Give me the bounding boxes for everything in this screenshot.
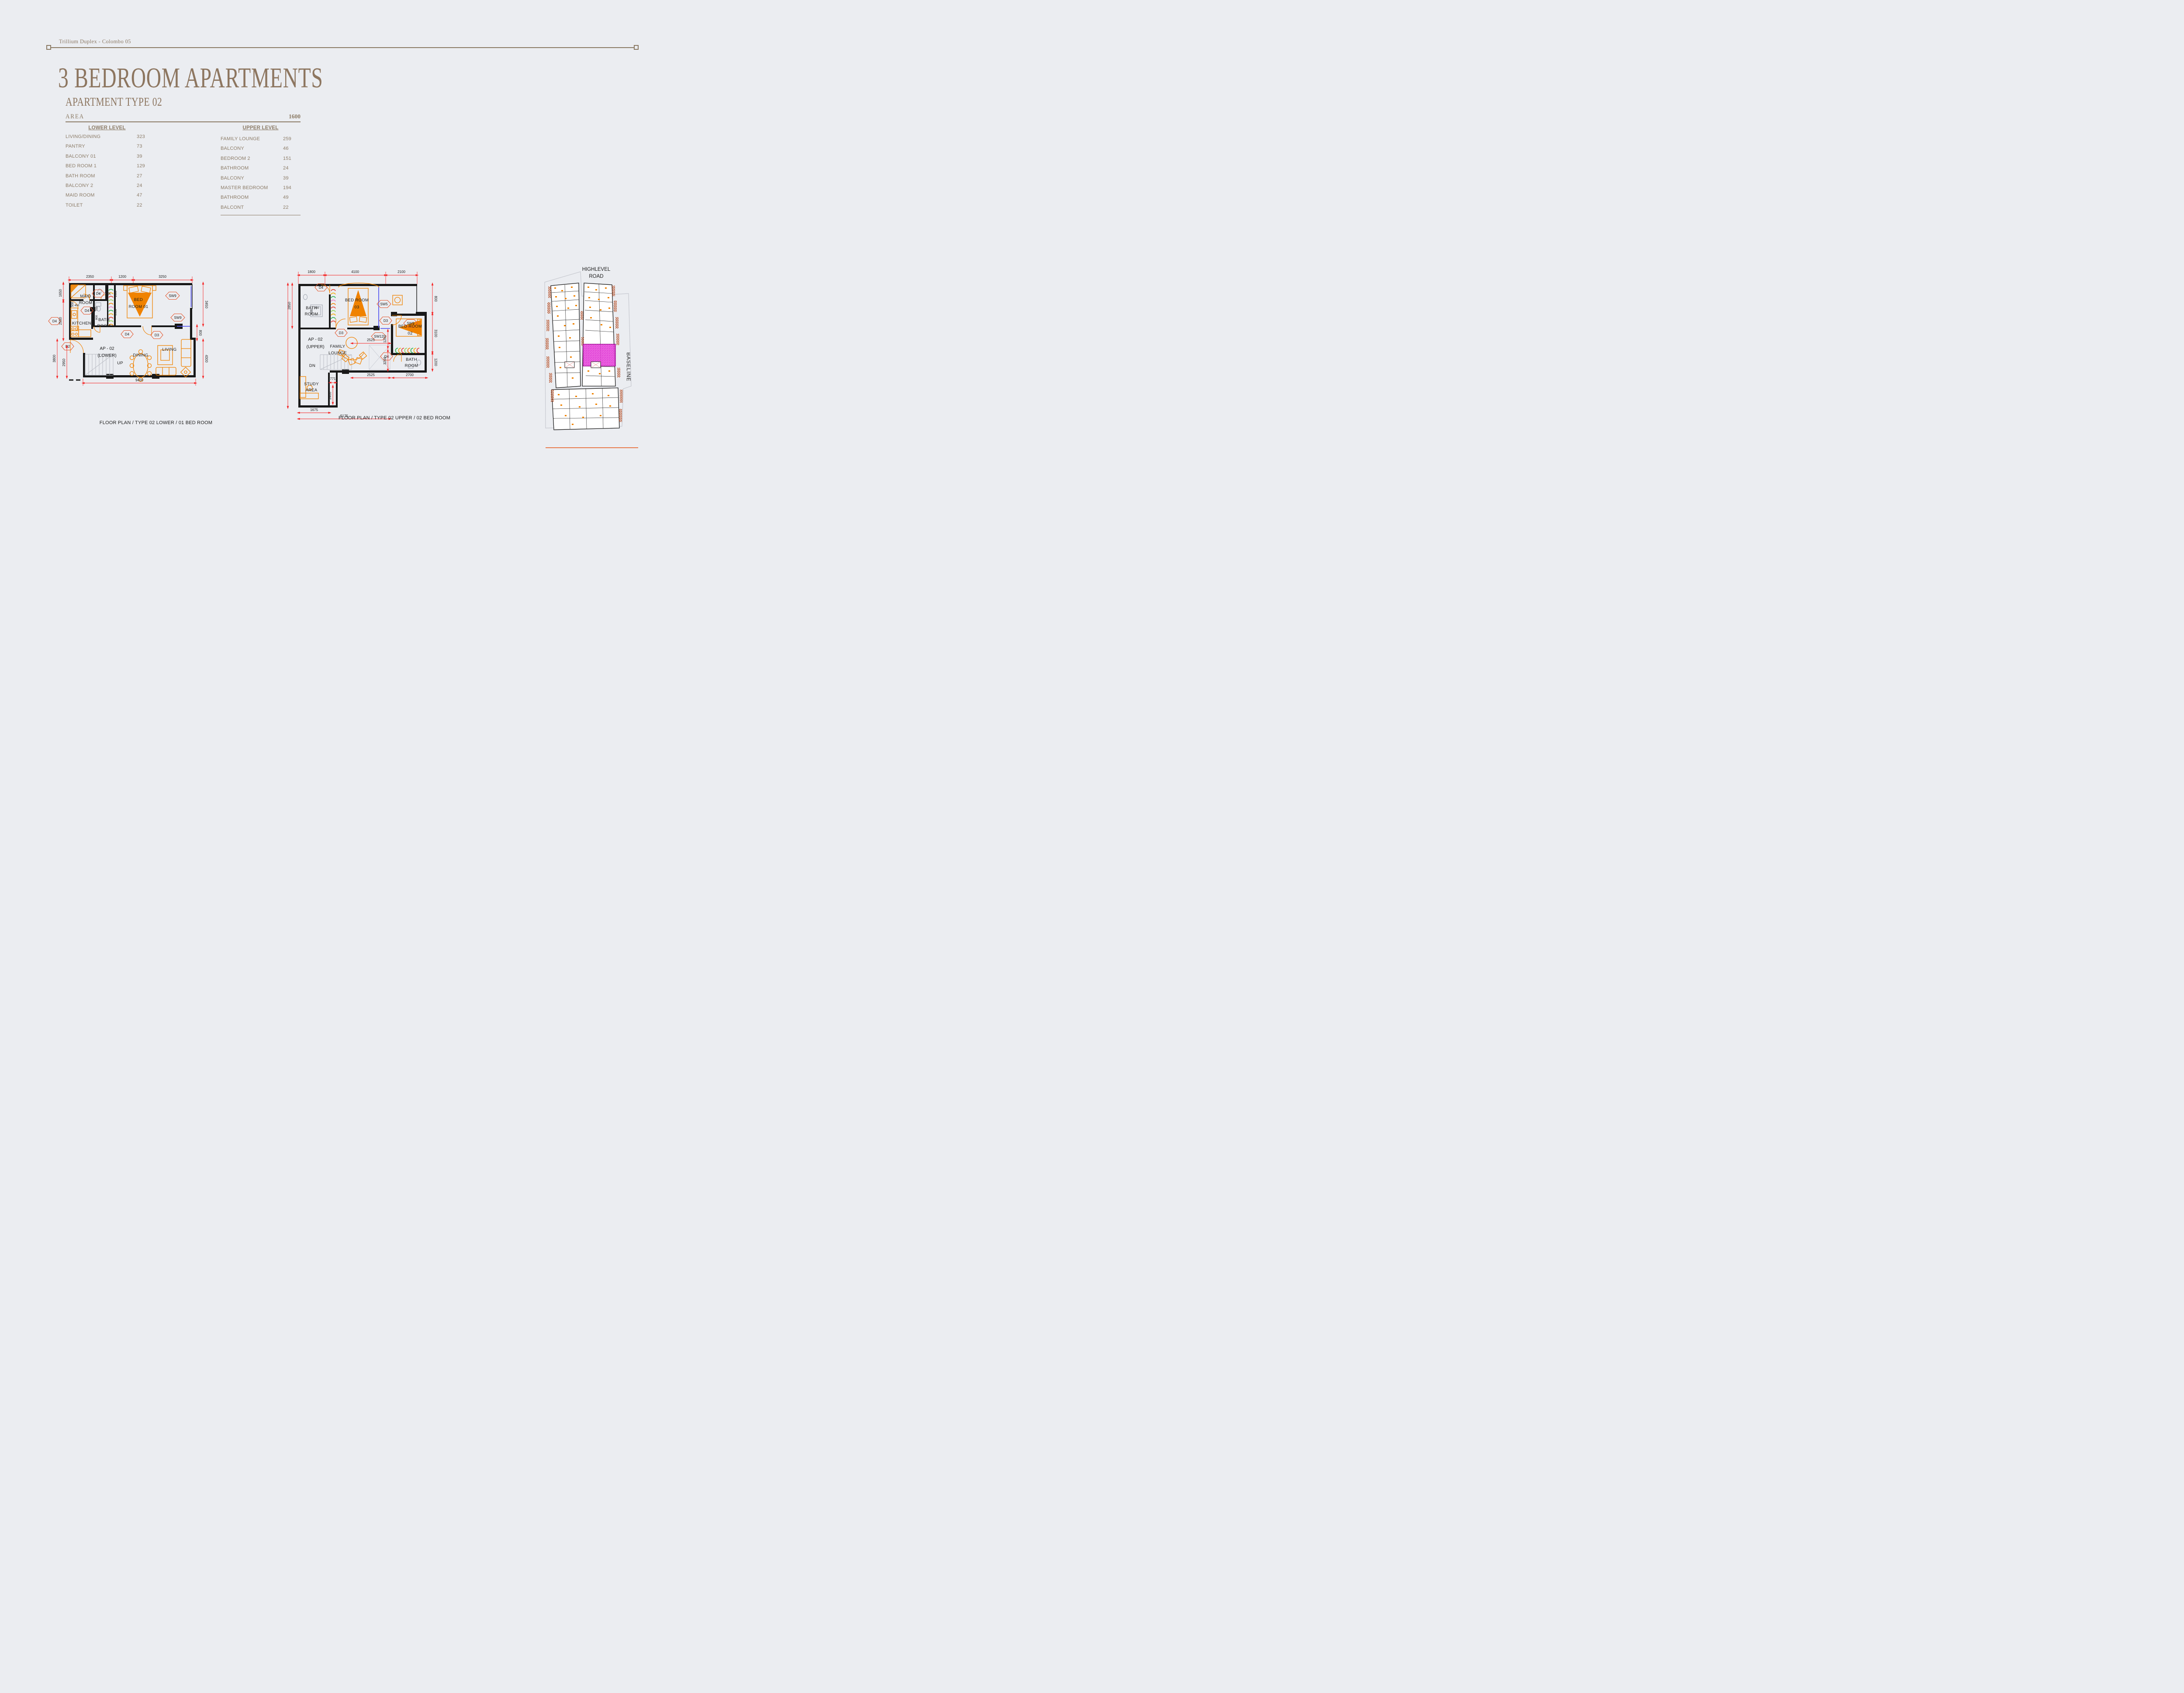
svg-text:FAMILY: FAMILY xyxy=(330,344,346,349)
svg-text:LOUNGE: LOUNGE xyxy=(328,351,347,356)
door-tag: D3 xyxy=(335,329,347,337)
svg-text:ROOM: ROOM xyxy=(79,301,93,305)
svg-text:02: 02 xyxy=(408,331,412,336)
upper-level-heading: UPPER LEVEL xyxy=(221,125,301,131)
svg-text:2850: 2850 xyxy=(287,302,291,310)
area-rule xyxy=(66,121,301,122)
svg-text:7000: 7000 xyxy=(286,342,287,350)
table-row: LIVING/DINING323 xyxy=(66,132,149,142)
svg-text:STUDY: STUDY xyxy=(304,382,319,387)
door-tag: D3 xyxy=(380,317,392,325)
svg-text:1200: 1200 xyxy=(118,275,126,279)
table-row: BALCONY 0139 xyxy=(66,152,149,161)
area-header: AREA 1600 xyxy=(66,113,301,121)
svg-text:700: 700 xyxy=(95,306,98,311)
svg-text:2350: 2350 xyxy=(114,309,117,315)
svg-text:D3: D3 xyxy=(339,331,344,335)
svg-text:BATH: BATH xyxy=(406,357,417,362)
table-row: TOILET22 xyxy=(66,200,149,210)
svg-text:AREA: AREA xyxy=(305,388,317,393)
svg-text:4300: 4300 xyxy=(204,355,208,363)
svg-text:800: 800 xyxy=(198,330,202,336)
svg-text:9400: 9400 xyxy=(135,378,143,382)
table-row: BATHROOM49 xyxy=(221,193,301,202)
plan-tags: D4 D4 D4 D4 D2 D3 SW9 SW9 xyxy=(48,290,185,350)
svg-text:BATH: BATH xyxy=(98,318,110,322)
svg-text:SW9: SW9 xyxy=(169,294,176,298)
table-row: BALCONY39 xyxy=(221,173,301,183)
lower-plan-caption: FLOOR PLAN / TYPE 02 LOWER / 01 BED ROOM xyxy=(84,420,228,425)
svg-text:3250: 3250 xyxy=(159,275,166,279)
svg-text:4100: 4100 xyxy=(351,270,359,274)
dimensions: 2350 1200 3250 1650 2550 3800 2950 3450 … xyxy=(52,275,208,386)
svg-text:800: 800 xyxy=(95,315,98,320)
svg-text:ROOM 01: ROOM 01 xyxy=(129,304,149,309)
site-key-plan: HIGHLEVEL ROAD BASELINE xyxy=(539,259,643,446)
svg-text:771: 771 xyxy=(330,377,336,381)
footer-rule xyxy=(546,447,638,448)
svg-text:D4: D4 xyxy=(85,309,90,313)
svg-text:2350: 2350 xyxy=(86,275,94,279)
svg-text:AP - 02: AP - 02 xyxy=(100,346,114,351)
upper-level-table: UPPER LEVEL FAMILY LOUNGE259 BALCONY46 B… xyxy=(221,125,301,212)
svg-text:1675: 1675 xyxy=(310,408,318,412)
svg-text:3450: 3450 xyxy=(204,301,208,308)
svg-text:500: 500 xyxy=(71,302,74,307)
svg-text:2550: 2550 xyxy=(59,317,62,325)
road-label: ROAD xyxy=(589,274,603,279)
apartment-type-subtitle: APARTMENT TYPE 02 xyxy=(66,96,186,108)
svg-text:ROOM: ROOM xyxy=(97,324,111,328)
svg-text:DINING: DINING xyxy=(133,353,148,358)
road-label: HIGHLEVEL xyxy=(582,267,611,272)
table-row: FAMILY LOUNGE259 xyxy=(221,134,301,144)
header-rule-end-left xyxy=(46,45,51,50)
table-row: BATHROOM24 xyxy=(221,163,301,173)
svg-text:(UPPER): (UPPER) xyxy=(306,345,324,349)
table-row: BED ROOM 1129 xyxy=(66,161,149,171)
svg-text:2525: 2525 xyxy=(367,373,375,377)
area-label: AREA xyxy=(66,113,84,121)
brochure-page: Trillium Duplex - Colombo 05 3 BEDROOM A… xyxy=(0,0,685,484)
svg-text:1650: 1650 xyxy=(59,289,62,297)
svg-text:03: 03 xyxy=(354,305,359,310)
table-row: MAID ROOM47 xyxy=(66,190,149,200)
svg-text:D3: D3 xyxy=(155,333,159,337)
svg-text:800: 800 xyxy=(434,296,438,302)
window-tag: SW9 xyxy=(171,314,185,321)
svg-text:D3: D3 xyxy=(384,319,388,323)
svg-text:LIVING: LIVING xyxy=(162,347,177,352)
table-row: BATH ROOM27 xyxy=(66,171,149,181)
svg-text:1000: 1000 xyxy=(114,290,117,297)
table-row: BALCONY46 xyxy=(221,144,301,153)
svg-text:1800: 1800 xyxy=(308,270,315,274)
svg-text:MAID: MAID xyxy=(80,294,91,299)
svg-text:2525: 2525 xyxy=(367,338,375,342)
upper-plan-caption: FLOOR PLAN / TYPE 02 UPPER / 02 BED ROOM xyxy=(322,415,467,421)
svg-text:SW12: SW12 xyxy=(374,335,384,339)
svg-text:KITCHEN: KITCHEN xyxy=(72,321,91,326)
svg-text:BED ROOM: BED ROOM xyxy=(398,324,422,329)
svg-text:SW9: SW9 xyxy=(174,316,182,320)
lower-level-table: LOWER LEVEL LIVING/DINING323 PANTRY73 BA… xyxy=(66,125,149,210)
svg-text:ROOM: ROOM xyxy=(305,312,318,317)
svg-text:ROOM: ROOM xyxy=(405,363,418,368)
svg-text:2950: 2950 xyxy=(62,359,66,366)
floor-plan-lower: D4 D4 D4 D4 D2 D3 SW9 SW9 2350 1200 3250… xyxy=(41,269,212,432)
svg-text:UP: UP xyxy=(117,361,123,366)
table-row: BEDROOM 2151 xyxy=(221,154,301,163)
svg-text:2100: 2100 xyxy=(397,270,405,274)
table-rule xyxy=(221,215,301,215)
table-row: PANTRY73 xyxy=(66,142,149,151)
header-rule-end-right xyxy=(634,45,639,50)
svg-text:DN: DN xyxy=(309,363,315,368)
svg-text:2400: 2400 xyxy=(328,392,332,400)
svg-text:3200: 3200 xyxy=(383,357,387,365)
svg-text:TOI.: TOI. xyxy=(104,292,111,296)
svg-text:3800: 3800 xyxy=(52,355,56,363)
table-row: BALCONT22 xyxy=(221,203,301,212)
door-tag: D4 xyxy=(121,331,133,338)
area-total-value: 1600 xyxy=(289,113,301,120)
door-tag: D3 xyxy=(151,332,163,339)
table-row: BALCONY 224 xyxy=(66,181,149,190)
svg-text:D2: D2 xyxy=(66,345,70,349)
svg-text:(LOWER): (LOWER) xyxy=(97,353,116,358)
svg-text:BATH: BATH xyxy=(306,306,317,311)
svg-text:D4: D4 xyxy=(125,332,130,336)
table-row: MASTER BEDROOM194 xyxy=(221,183,301,193)
floor-plan-upper: D4 D4 D3 D3 SW5 SW9 SW12 1800 4100 2100 … xyxy=(286,262,459,435)
door-tag: D2 xyxy=(62,343,74,350)
svg-text:3100: 3100 xyxy=(434,329,438,337)
page-title: 3 BEDROOM APARTMENTS xyxy=(58,64,426,93)
svg-text:D4: D4 xyxy=(96,292,101,296)
svg-text:AP - 02: AP - 02 xyxy=(308,337,323,342)
lower-level-heading: LOWER LEVEL xyxy=(66,125,149,131)
svg-text:2700: 2700 xyxy=(406,373,414,377)
header-rule xyxy=(49,47,635,48)
svg-text:1200: 1200 xyxy=(383,335,387,343)
svg-text:D4: D4 xyxy=(52,319,57,323)
svg-text:BED ROOM: BED ROOM xyxy=(345,298,369,303)
svg-text:SW5: SW5 xyxy=(380,302,388,306)
project-name: Trillium Duplex - Colombo 05 xyxy=(59,38,131,45)
svg-text:D4: D4 xyxy=(319,286,324,290)
svg-text:1200: 1200 xyxy=(434,358,438,366)
svg-text:BED: BED xyxy=(134,297,143,302)
windows xyxy=(177,286,191,326)
building-footprint xyxy=(546,283,623,430)
window-tag: SW9 xyxy=(166,292,180,300)
